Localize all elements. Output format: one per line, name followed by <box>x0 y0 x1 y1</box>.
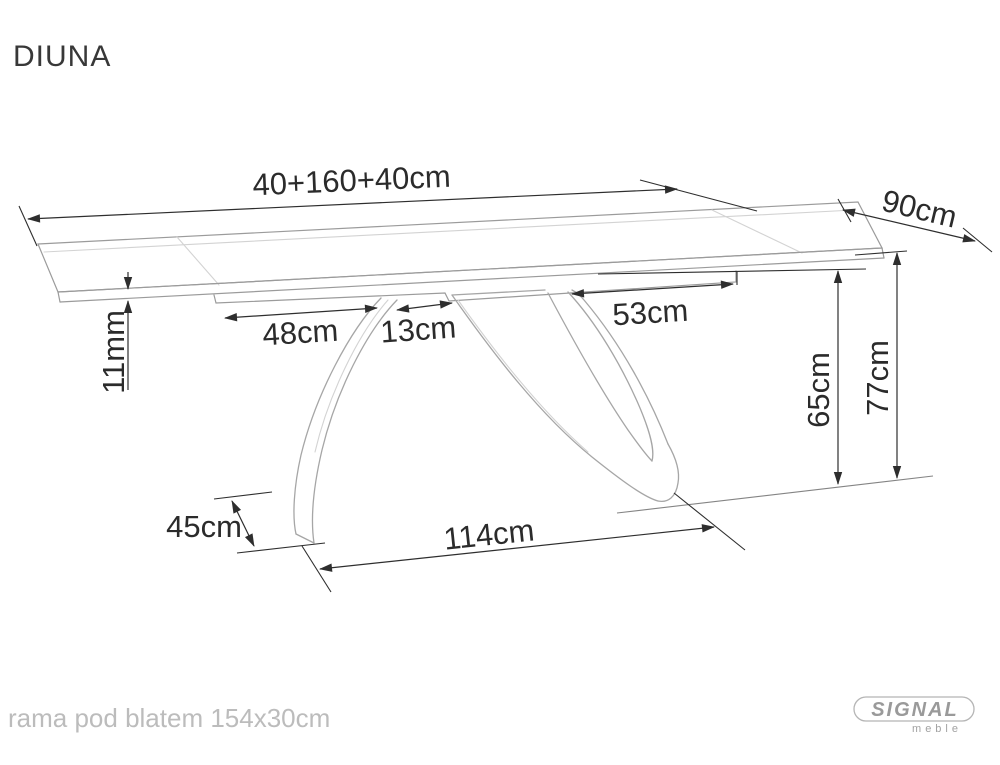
leaf-seam-right <box>712 210 802 253</box>
dim-top-length: 40+160+40cm <box>19 159 757 246</box>
tabletop-bevel-line <box>44 210 854 252</box>
dim-frame-right-line <box>572 284 733 294</box>
dim-base-span-ext-right <box>674 493 745 550</box>
dim-base-span-ext-left <box>302 546 331 592</box>
dim-top-length-label: 40+160+40cm <box>252 159 452 203</box>
dim-frame-right: 53cm <box>572 271 737 332</box>
left-foot-bottom <box>296 534 314 543</box>
tabletop-front-bottom-edge <box>60 258 884 302</box>
dim-top-depth-ext-right <box>963 228 992 252</box>
dim-top-thickness-label: 11mm <box>96 310 131 394</box>
dim-top-length-ext-right <box>640 180 757 211</box>
tabletop-front-top-edge <box>58 248 882 292</box>
tabletop-left-end <box>58 292 60 302</box>
dim-base-span-label: 114cm <box>442 512 536 556</box>
floor-line <box>617 476 933 513</box>
right-leg-highlight <box>458 300 588 452</box>
dim-total-height-ext <box>855 251 907 255</box>
dim-frame-gap-label: 13cm <box>379 309 457 349</box>
dim-total-height-label: 77cm <box>860 340 895 416</box>
dim-top-length-ext-left <box>19 206 37 246</box>
right-leg-top-edge <box>452 290 545 295</box>
dim-frame-left-label: 48cm <box>261 313 339 353</box>
dim-foot-depth: 45cm <box>166 492 325 553</box>
dim-frame-left: 48cm <box>225 308 377 352</box>
logo-brand-text: SIGNAL <box>871 699 959 721</box>
dim-foot-depth-ext-top <box>214 492 272 499</box>
dim-underside-height-label: 65cm <box>801 352 836 428</box>
right-foot-curl <box>658 444 679 501</box>
dim-top-depth: 90cm <box>838 183 992 252</box>
dim-foot-depth-label: 45cm <box>166 509 242 544</box>
dim-total-height: 77cm <box>855 251 907 478</box>
dim-foot-depth-ext-bottom <box>237 543 325 553</box>
table-dimension-drawing: DIUNA <box>0 0 1000 765</box>
dim-frame-gap: 13cm <box>379 303 457 350</box>
tabletop <box>38 202 884 303</box>
dim-top-depth-label: 90cm <box>879 183 961 235</box>
dim-base-span: 114cm <box>302 493 745 592</box>
frame-note: rama pod blatem 154x30cm <box>8 703 330 733</box>
dim-frame-right-label: 53cm <box>611 293 689 333</box>
dim-frame-gap-line <box>397 303 452 310</box>
page-title: DIUNA <box>13 40 111 73</box>
logo-subbrand-text: meble <box>912 723 962 735</box>
brand-logo: SIGNAL meble <box>854 697 974 735</box>
diagram-canvas: DIUNA <box>0 0 1000 765</box>
